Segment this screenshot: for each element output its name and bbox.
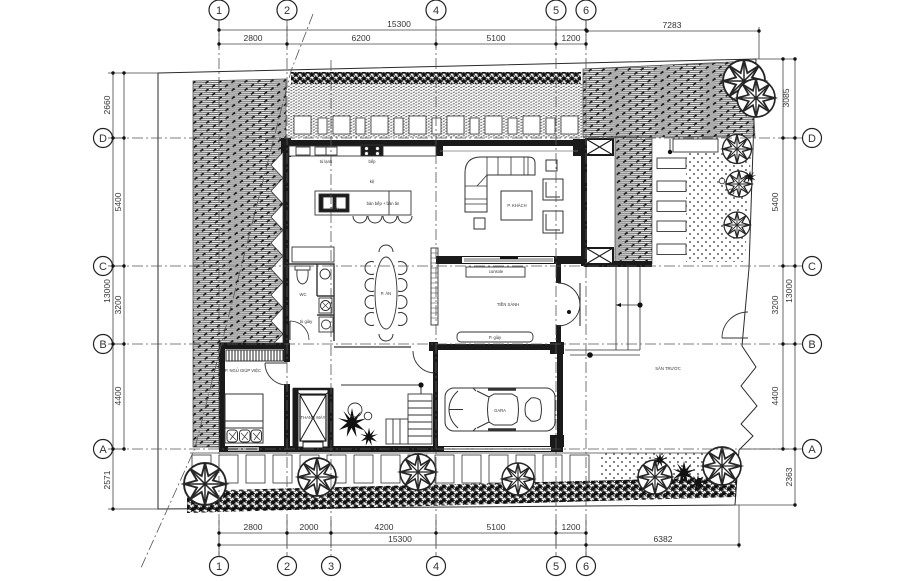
- svg-text:4200: 4200: [375, 522, 394, 532]
- svg-text:15300: 15300: [387, 19, 411, 29]
- svg-text:D: D: [808, 133, 816, 145]
- svg-text:5400: 5400: [770, 192, 780, 211]
- svg-text:SÂN TRƯỚC: SÂN TRƯỚC: [655, 366, 680, 371]
- svg-text:1200: 1200: [562, 33, 581, 43]
- svg-text:A: A: [99, 444, 107, 456]
- svg-text:13000: 13000: [102, 279, 112, 303]
- svg-text:bếp: bếp: [369, 159, 377, 164]
- svg-text:1200: 1200: [562, 522, 581, 532]
- svg-text:1: 1: [216, 561, 222, 573]
- svg-text:6200: 6200: [352, 33, 371, 43]
- svg-text:2000: 2000: [300, 522, 319, 532]
- svg-text:3085: 3085: [781, 88, 791, 107]
- svg-text:4400: 4400: [113, 386, 123, 405]
- svg-text:2800: 2800: [244, 33, 263, 43]
- svg-text:1: 1: [216, 5, 222, 17]
- svg-text:2363: 2363: [784, 467, 794, 486]
- svg-text:D: D: [99, 133, 107, 145]
- svg-text:6: 6: [583, 561, 589, 573]
- svg-text:P. giày: P. giày: [489, 335, 502, 340]
- svg-text:4: 4: [433, 561, 439, 573]
- svg-text:3200: 3200: [770, 295, 780, 314]
- svg-text:B: B: [808, 339, 815, 351]
- svg-text:GARA: GARA: [494, 408, 506, 413]
- svg-text:2: 2: [284, 5, 290, 17]
- svg-text:TIỀN SẢNH: TIỀN SẢNH: [497, 302, 519, 307]
- svg-text:5100: 5100: [487, 33, 506, 43]
- svg-text:5400: 5400: [113, 192, 123, 211]
- svg-text:5100: 5100: [487, 522, 506, 532]
- svg-text:13000: 13000: [784, 279, 794, 303]
- svg-text:2660: 2660: [102, 95, 112, 114]
- svg-text:3200: 3200: [113, 295, 123, 314]
- svg-text:7283: 7283: [663, 20, 682, 30]
- svg-text:4400: 4400: [770, 386, 780, 405]
- svg-text:bàn bếp + bàn ăn: bàn bếp + bàn ăn: [367, 201, 400, 206]
- svg-text:tủ giày: tủ giày: [300, 319, 313, 324]
- svg-text:15300: 15300: [388, 534, 412, 544]
- svg-text:WC: WC: [300, 292, 307, 297]
- svg-text:4: 4: [433, 5, 439, 17]
- svg-text:C: C: [808, 261, 816, 273]
- svg-text:P. NGỦ GIÚP VIỆC: P. NGỦ GIÚP VIỆC: [225, 368, 261, 373]
- svg-text:console: console: [489, 269, 504, 274]
- svg-text:A: A: [808, 444, 816, 456]
- svg-text:3: 3: [328, 561, 334, 573]
- svg-text:2571: 2571: [102, 470, 112, 489]
- svg-text:kệ: kệ: [370, 179, 375, 184]
- svg-text:5: 5: [553, 561, 559, 573]
- svg-text:6382: 6382: [654, 534, 673, 544]
- svg-text:2: 2: [284, 561, 290, 573]
- svg-text:P. KHÁCH: P. KHÁCH: [507, 203, 526, 208]
- svg-text:tủ lạnh: tủ lạnh: [320, 159, 333, 164]
- svg-text:chậu: chậu: [329, 206, 339, 211]
- svg-text:THANG MÁY: THANG MÁY: [301, 415, 326, 420]
- svg-text:B: B: [99, 339, 106, 351]
- svg-text:6: 6: [583, 5, 589, 17]
- svg-text:P. ĂN: P. ĂN: [381, 291, 391, 296]
- svg-text:C: C: [99, 261, 107, 273]
- svg-text:5: 5: [553, 5, 559, 17]
- svg-text:2800: 2800: [244, 522, 263, 532]
